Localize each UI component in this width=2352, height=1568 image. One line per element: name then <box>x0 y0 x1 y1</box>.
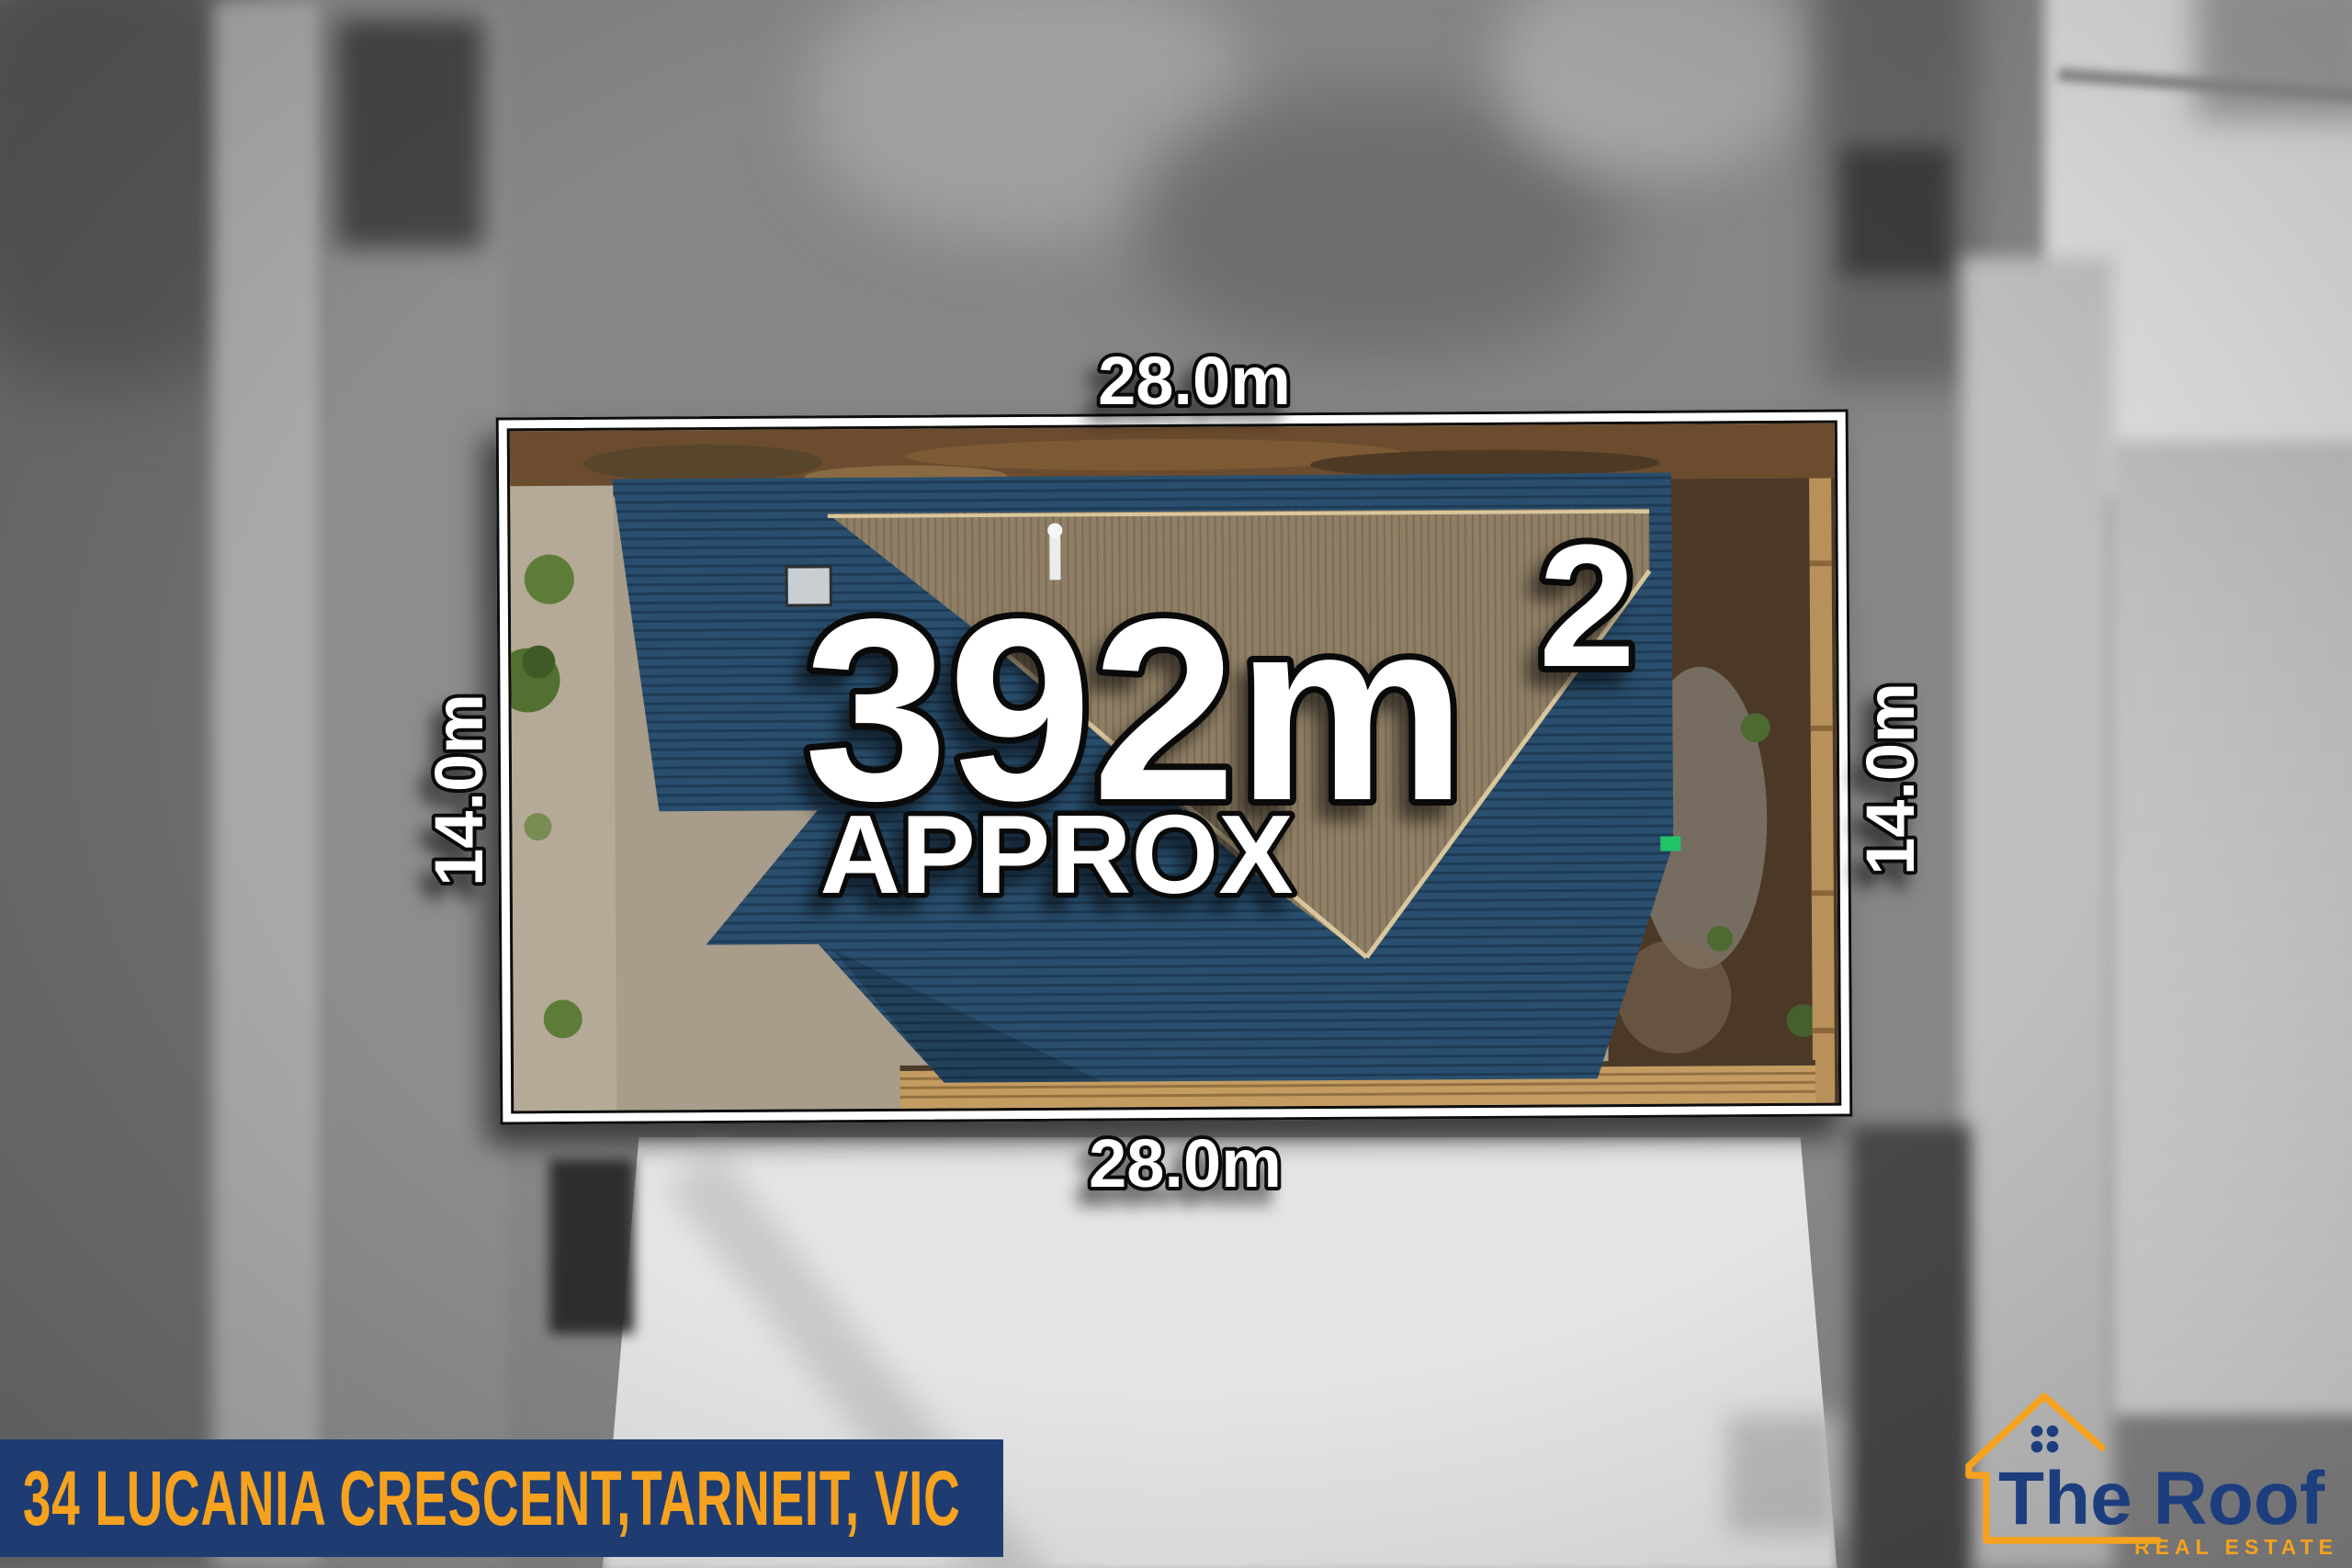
agency-logo: The Roof REAL ESTATE <box>1946 1374 2352 1568</box>
logo-tagline: REAL ESTATE <box>2134 1535 2338 1559</box>
window-dots-icon <box>2031 1426 2059 1453</box>
svg-text:28.0m: 28.0m <box>1089 1125 1282 1201</box>
bg-ground-patch-light <box>808 0 1249 239</box>
bg-pole-bottom <box>549 1159 634 1334</box>
bg-roof-edge-line <box>2058 68 2352 103</box>
bg-trees-top-right <box>1819 0 1975 386</box>
bg-vehicle-top-left <box>336 18 483 248</box>
bg-ground-mark-bottom <box>1727 1415 1837 1534</box>
bg-road-right <box>2109 441 2352 1415</box>
dimension-label-left: 14.0m <box>386 643 533 937</box>
svg-text:28.0m: 28.0m <box>1098 343 1291 419</box>
dimension-label-bottom: 28.0m <box>1001 1113 1369 1214</box>
approx-label: APPROX <box>873 781 1259 928</box>
bg-road-left <box>213 0 323 1568</box>
logo-graphic: The Roof REAL ESTATE <box>1946 1374 2352 1568</box>
svg-text:14.0m: 14.0m <box>421 694 497 886</box>
area-superscript: 2 <box>1539 509 1636 704</box>
dimension-label-top: 28.0m <box>1011 331 1378 432</box>
bg-path-right <box>1962 257 2113 1568</box>
property-address: 34 LUCANIA CRESCENT,TARNEIT, VIC <box>0 1454 960 1543</box>
bg-ground-patch-light-2 <box>1498 0 1810 175</box>
roof-green-marker <box>1660 836 1680 851</box>
real-estate-listing-image: 392m 2 APPROX 28.0m 28.0m 14.0m 14.0m 34… <box>0 0 2352 1568</box>
address-banner: 34 LUCANIA CRESCENT,TARNEIT, VIC <box>0 1439 1003 1557</box>
bg-roof-wedge-top-right <box>2196 0 2352 119</box>
bg-vehicle-top-right <box>1841 147 1951 276</box>
logo-name: The Roof <box>1998 1457 2325 1540</box>
dimension-label-right: 14.0m <box>1817 632 1964 926</box>
bg-neighbor-roof-right <box>2044 0 2352 496</box>
bg-left-dark-ground <box>0 0 220 1568</box>
svg-text:APPROX: APPROX <box>820 792 1293 917</box>
bg-trees-top-left <box>0 0 276 386</box>
bg-ground-patch-dark <box>1139 92 1617 358</box>
svg-text:14.0m: 14.0m <box>1852 682 1928 875</box>
